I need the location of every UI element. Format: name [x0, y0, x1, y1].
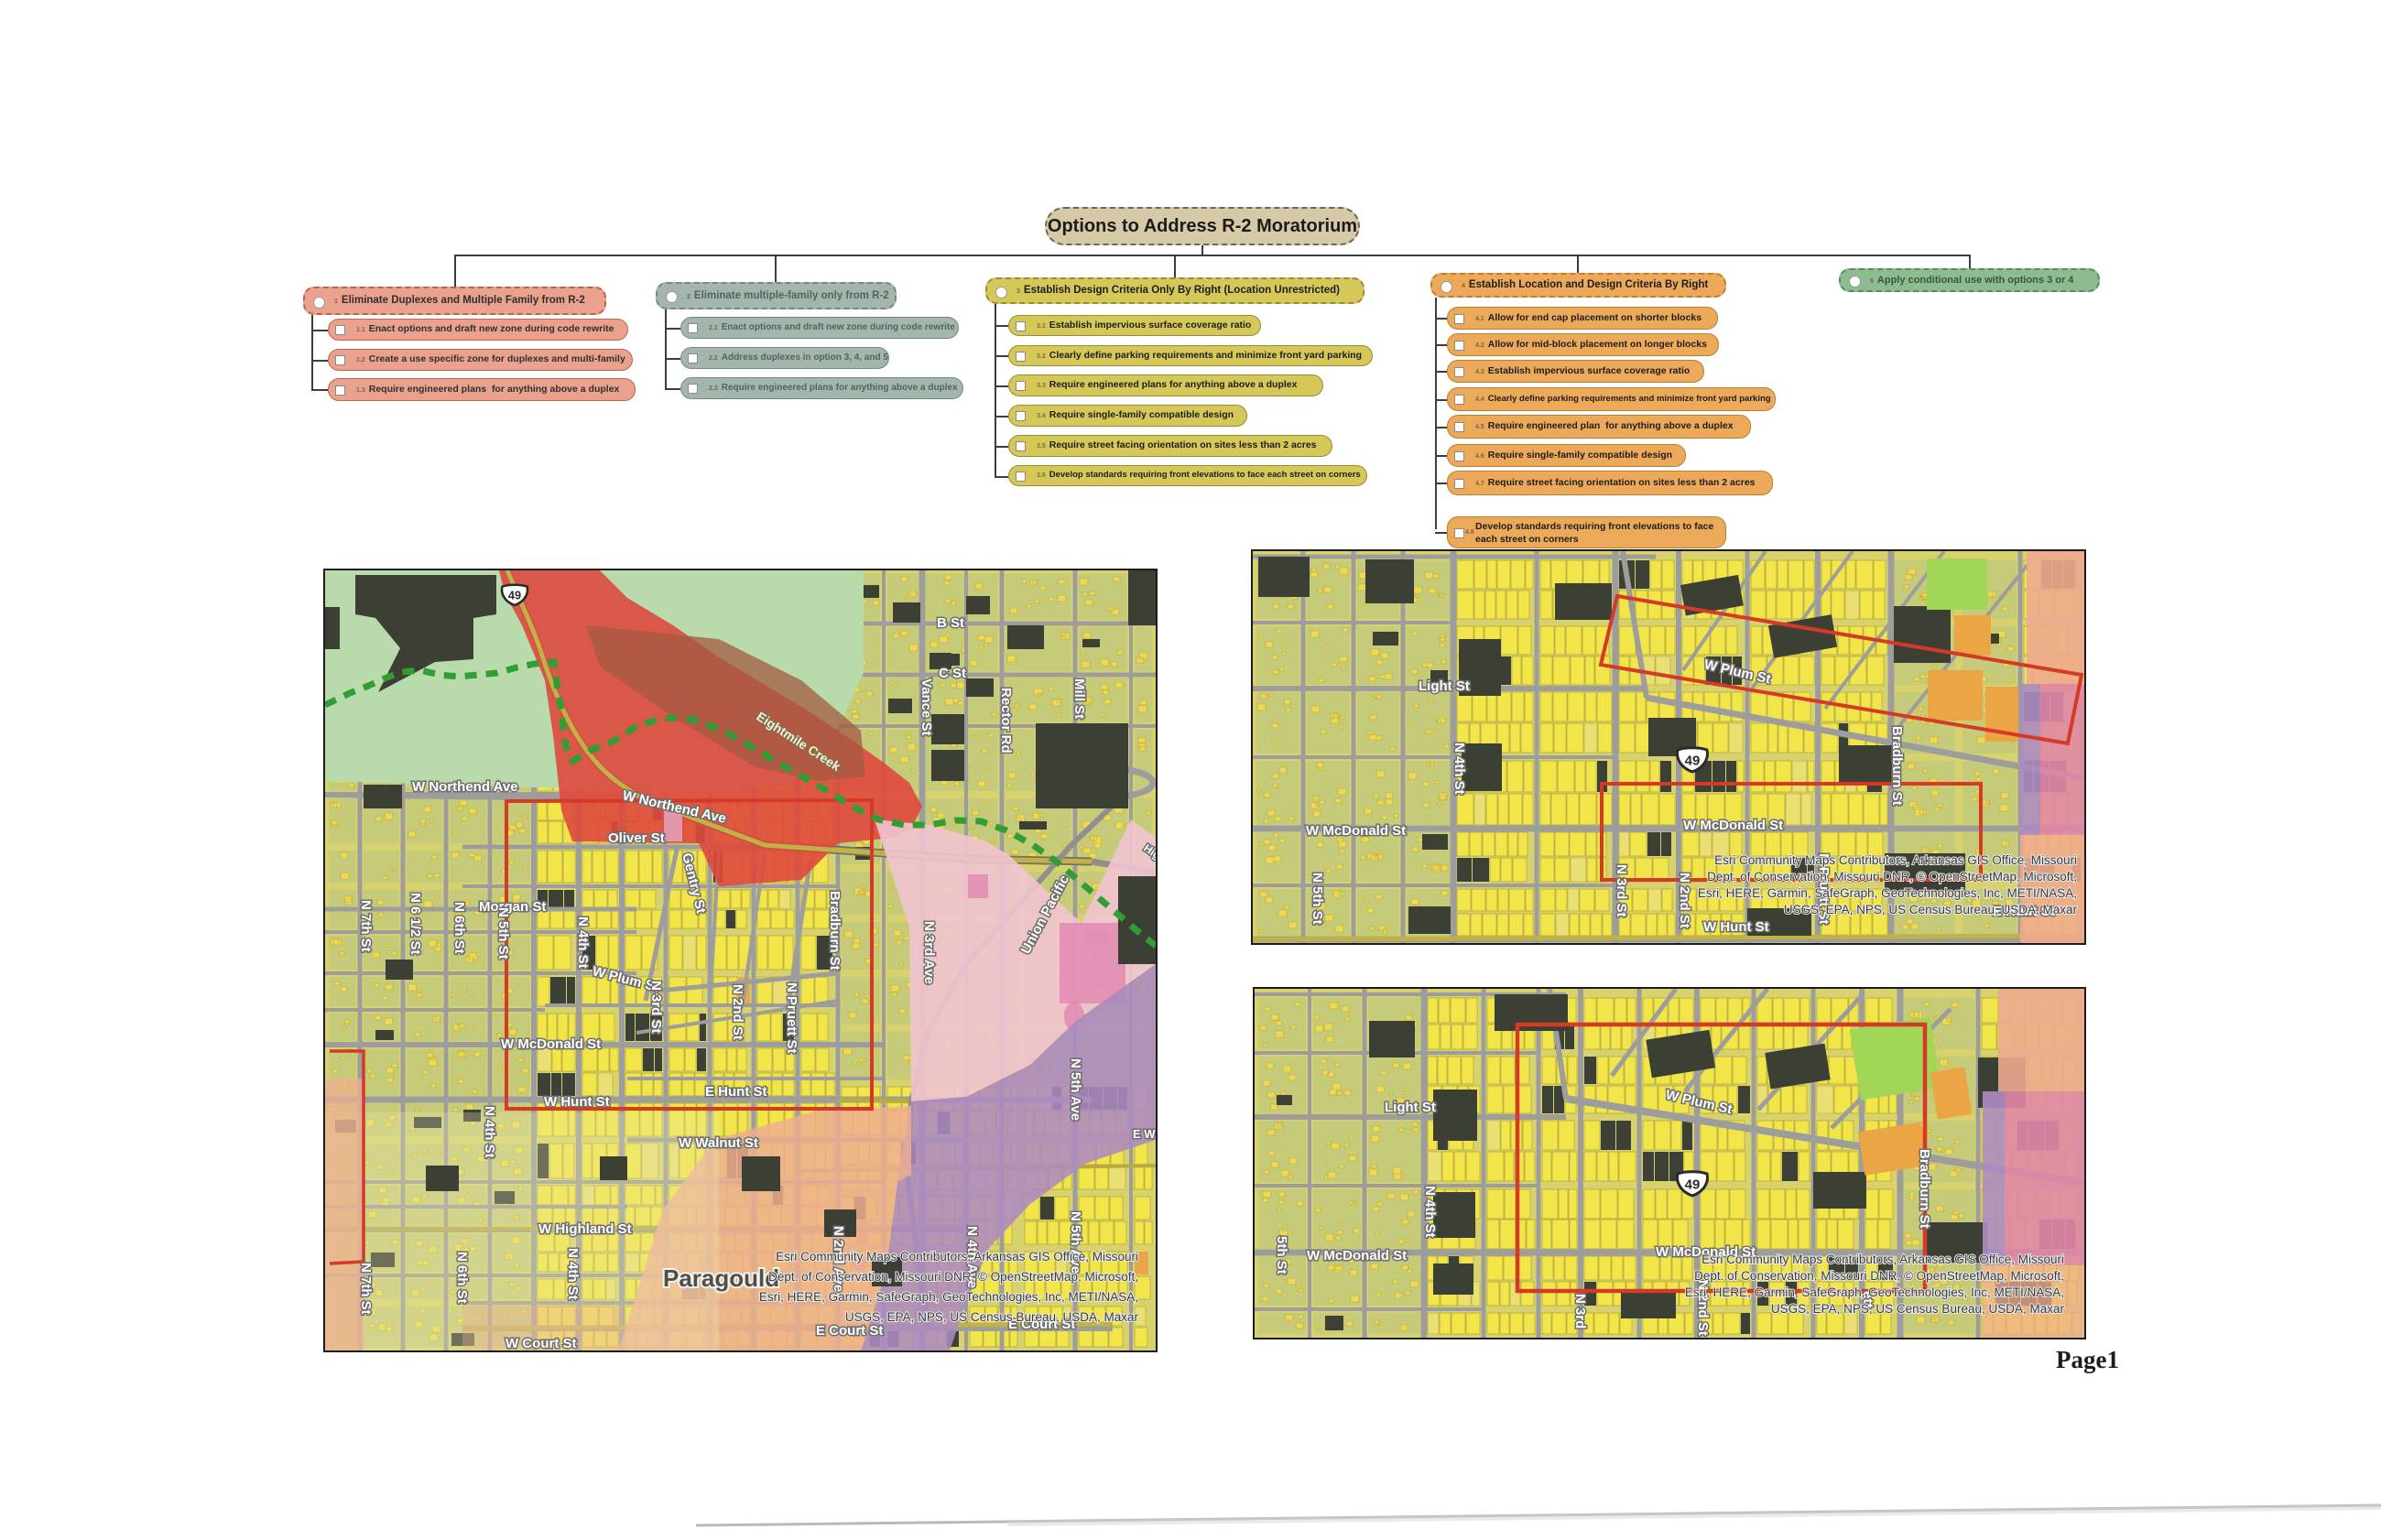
svg-text:N 4th St: N 4th St [565, 1248, 581, 1300]
svg-text:N 4th St: N 4th St [1422, 1186, 1438, 1238]
svg-text:N 5th St: N 5th St [1310, 873, 1325, 925]
svg-text:N 7th St: N 7th St [358, 1263, 374, 1315]
svg-text:N 3rd St: N 3rd St [648, 981, 664, 1034]
svg-text:Esri Community Maps Contributo: Esri Community Maps Contributors, Arkans… [1714, 853, 2077, 867]
svg-text:N 6th St: N 6th St [451, 902, 467, 954]
svg-text:N 3rd Ave: N 3rd Ave [921, 921, 937, 984]
svg-text:49: 49 [1685, 754, 1701, 769]
svg-text:49: 49 [1685, 1177, 1701, 1193]
svg-text:N 6 1/2 St: N 6 1/2 St [408, 893, 423, 955]
svg-text:Bradburn St: Bradburn St [1889, 726, 1905, 806]
svg-text:N 5th Ave: N 5th Ave [1068, 1058, 1083, 1121]
svg-text:N 2nd St: N 2nd St [1677, 873, 1692, 928]
svg-text:Morgan St: Morgan St [479, 899, 546, 915]
svg-text:Esri Community Maps Contributo: Esri Community Maps Contributors, Arkans… [776, 1250, 1138, 1263]
svg-text:N 4th St: N 4th St [482, 1106, 497, 1158]
svg-text:W McDonald St: W McDonald St [1307, 1248, 1407, 1263]
svg-text:N 7th St: N 7th St [358, 900, 374, 952]
svg-text:USGS, EPA, NPS, US Census Bure: USGS, EPA, NPS, US Census Bureau, USDA, … [1784, 903, 2078, 916]
svg-text:Dept. of Conservation, Missour: Dept. of Conservation, Missouri DNR, © O… [768, 1270, 1138, 1284]
svg-text:N 5th Ave: N 5th Ave [1068, 1211, 1083, 1274]
svg-text:C St: C St [939, 666, 966, 681]
svg-text:Esri, HERE, Garmin, SafeGraph,: Esri, HERE, Garmin, SafeGraph, GeoTechno… [1698, 886, 2077, 900]
svg-text:N 3rd: N 3rd [1572, 1294, 1588, 1329]
svg-text:Esri, HERE, Garmin, SafeGraph,: Esri, HERE, Garmin, SafeGraph, GeoTechno… [1685, 1285, 2064, 1299]
svg-text:Light St: Light St [1385, 1100, 1436, 1115]
svg-text:W Northend Ave: W Northend Ave [412, 779, 518, 795]
svg-text:Light St: Light St [1419, 678, 1470, 694]
svg-text:W Walnut St: W Walnut St [679, 1135, 758, 1151]
svg-text:W Hunt St: W Hunt St [1703, 919, 1769, 935]
svg-text:Rector Rd: Rector Rd [998, 688, 1014, 754]
svg-text:Bradburn St: Bradburn St [827, 891, 843, 971]
svg-text:Oliver St: Oliver St [608, 830, 665, 846]
svg-text:N 4th St: N 4th St [1451, 743, 1467, 795]
svg-text:5th St: 5th St [1274, 1236, 1289, 1274]
svg-text:Dept. of Conservation, Missour: Dept. of Conservation, Missouri DNR, © O… [1694, 1269, 2064, 1283]
svg-text:Vance St: Vance St [919, 678, 934, 736]
svg-text:N 5th St: N 5th St [495, 907, 511, 960]
svg-text:Dept. of Conservation, Missour: Dept. of Conservation, Missouri DNR, © O… [1707, 870, 2077, 884]
svg-text:Esri Community Maps Contributo: Esri Community Maps Contributors, Arkans… [1701, 1253, 2064, 1266]
svg-text:N 3rd St: N 3rd St [1614, 864, 1629, 917]
svg-text:W McDonald St: W McDonald St [1683, 818, 1783, 833]
svg-text:Esri, HERE, Garmin, SafeGraph,: Esri, HERE, Garmin, SafeGraph, GeoTechno… [759, 1290, 1138, 1304]
svg-text:E W: E W [1133, 1127, 1156, 1141]
svg-text:E Court St: E Court St [816, 1323, 883, 1339]
svg-text:N 2nd St: N 2nd St [730, 984, 745, 1040]
svg-text:W McDonald St: W McDonald St [501, 1036, 601, 1052]
svg-text:N 6th St: N 6th St [454, 1252, 470, 1304]
svg-text:W Highland St: W Highland St [538, 1221, 632, 1237]
svg-text:N Pruett St: N Pruett St [784, 982, 799, 1054]
svg-text:E Hunt St: E Hunt St [705, 1084, 767, 1100]
svg-text:W McDonald St: W McDonald St [1306, 823, 1406, 839]
svg-text:49: 49 [508, 589, 521, 602]
svg-text:Mill St: Mill St [1071, 678, 1087, 719]
svg-text:W Hunt St: W Hunt St [544, 1094, 610, 1110]
svg-text:USGS, EPA, NPS, US Census Bure: USGS, EPA, NPS, US Census Bureau, USDA, … [1771, 1302, 2065, 1316]
svg-text:B St: B St [937, 615, 964, 631]
svg-text:USGS, EPA, NPS, US Census Bure: USGS, EPA, NPS, US Census Bureau, USDA, … [845, 1310, 1139, 1324]
svg-text:Paragould: Paragould [663, 1264, 779, 1292]
svg-text:W Court St: W Court St [506, 1336, 576, 1351]
svg-text:N 4th St: N 4th St [575, 916, 591, 969]
svg-text:Bradburn St: Bradburn St [1917, 1149, 1932, 1229]
